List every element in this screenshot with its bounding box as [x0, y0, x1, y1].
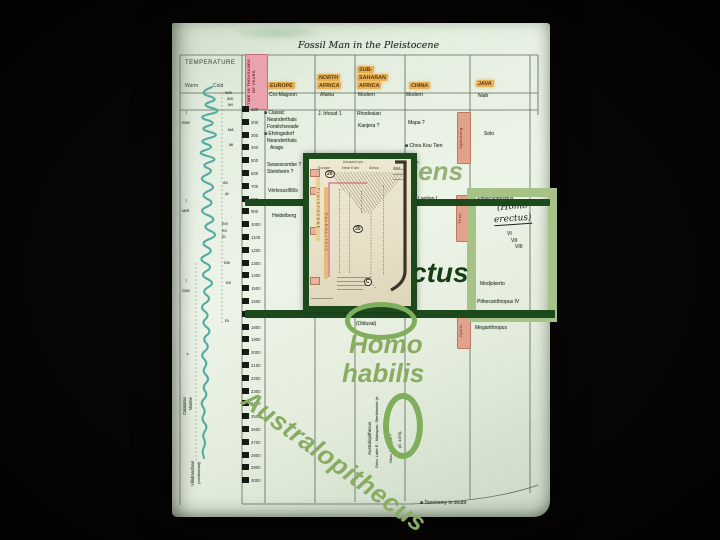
annotation-habilis: habilis	[342, 358, 424, 389]
time-tick-value: 1800	[251, 325, 261, 330]
column-header-line: AFRICA	[317, 82, 342, 89]
time-tick-dash	[242, 349, 249, 355]
time-tick-dash	[242, 247, 249, 253]
time-tick-dash	[242, 144, 249, 150]
scan-label: ↕	[185, 279, 188, 284]
scan-label: Calabrian	[183, 397, 187, 415]
time-tick-value: 300	[251, 133, 258, 138]
scan-label: Heidelberg	[272, 214, 296, 219]
time-tick-dash	[242, 362, 249, 368]
time-tick-dash	[242, 272, 249, 278]
column-header: JAVA	[476, 80, 494, 88]
cold-label: Cold	[213, 83, 223, 89]
scan-label: M/R	[182, 209, 189, 213]
time-tick-value: 400	[251, 145, 258, 150]
time-tick-dash	[242, 119, 249, 125]
time-tick-dash	[242, 132, 249, 138]
scan-label: ?	[186, 353, 189, 358]
time-tick-value: 3000	[251, 478, 261, 483]
inset-figure-box: thousand yrsEuropeNear EastAfricaAsia203…	[303, 153, 417, 312]
time-tick-dash	[242, 464, 249, 470]
scan-label: Niah	[478, 94, 488, 99]
scan-label: ■ Classic	[264, 111, 285, 116]
scan-label: Swanscombe ?	[267, 163, 301, 168]
time-tick-value: 1900	[251, 337, 261, 342]
scan-label: Modern	[358, 93, 375, 98]
scan-label: Cro-Magnon	[269, 93, 297, 98]
scan-label: Villafranchian	[191, 461, 195, 486]
time-tick-value: 500	[251, 158, 258, 163]
scan-label: Omo, Lake E., Makapan, Sterkfontein (a	[375, 397, 379, 468]
time-tick-value: 2900	[251, 465, 261, 470]
time-tick-value: 2000	[251, 350, 261, 355]
time-tick-dash	[242, 208, 249, 214]
scan-label: MA	[228, 128, 234, 132]
time-tick-value: 200	[251, 120, 258, 125]
inset-column-label: Near East	[342, 166, 359, 170]
time-tick-dash	[242, 106, 249, 112]
scan-label: Marine	[189, 397, 193, 410]
annotation-erectus-fragment: ctus	[411, 257, 469, 289]
inset-pink-box	[310, 169, 320, 177]
inset-epoch-strip: PLEISTOCENE	[316, 177, 320, 241]
scan-label: Neanderthals	[267, 118, 297, 123]
annotation-sapiens-fragment: iens	[411, 156, 463, 187]
scan-label: Steinheim ?	[267, 170, 293, 175]
column-header: EUROPE	[268, 82, 295, 90]
column-header-line: EUROPE	[268, 82, 295, 89]
time-tick-value: 1600	[251, 299, 261, 304]
scan-label: Arago	[270, 146, 283, 151]
scan-label: Solo	[484, 132, 494, 137]
inset-circled-number: 35	[353, 225, 363, 233]
time-tick-value: 1200	[251, 248, 261, 253]
time-tick-dash	[242, 452, 249, 458]
scan-label: AII	[223, 181, 228, 185]
time-tick-dash	[242, 183, 249, 189]
time-tick-value: 900	[251, 209, 258, 214]
scan-label: MI	[229, 143, 233, 147]
column-header-line: CHINA	[409, 82, 431, 89]
scan-label: Fontéchevade	[267, 125, 299, 130]
column-header-line: SUB-	[357, 66, 375, 73]
inset-circled-number: 20	[325, 170, 335, 178]
scan-label: R/W	[182, 121, 190, 125]
inset-texture	[393, 174, 405, 175]
inset-circled-number: C	[364, 278, 372, 286]
time-tick-value: 1300	[251, 261, 261, 266]
scan-label: (continental)	[197, 462, 201, 484]
column-header-line: AFRICA	[357, 82, 382, 89]
inset-column-label: Africa	[369, 166, 379, 170]
scan-label: DI	[225, 319, 229, 323]
scan-label: EII	[222, 229, 227, 233]
inset-column-label: Asia	[393, 166, 400, 170]
column-header: NORTHAFRICA	[317, 74, 341, 90]
inset-epoch-strip: PALEOLITHIC	[324, 187, 328, 279]
time-tick-value: 2800	[251, 453, 261, 458]
annotation-homo: Homo	[349, 329, 423, 360]
warm-label: Warm	[185, 83, 198, 89]
scan-label: Kanjera ?	[358, 124, 379, 129]
scan-label: ■ Taxonomy in doubt	[420, 501, 466, 506]
scan-label: EIII	[222, 222, 228, 226]
scan-label: WII	[227, 97, 233, 101]
time-tick-dash	[242, 298, 249, 304]
column-header-line: JAVA	[476, 80, 494, 87]
time-tick-dash	[242, 260, 249, 266]
time-tick-value: 2100	[251, 363, 261, 368]
time-tick-dash	[242, 426, 249, 432]
column-header-line: NORTH	[317, 74, 341, 81]
time-tick-value: 600	[251, 171, 258, 176]
marker-oval-1470	[383, 393, 423, 459]
inset-dotted-line	[361, 191, 362, 213]
time-tick-value: 2700	[251, 440, 261, 445]
scan-label: WIII	[225, 91, 232, 95]
column-header-line: SAHARAN	[357, 74, 389, 81]
time-tick-value: 1400	[251, 273, 261, 278]
time-tick-dash	[242, 285, 249, 291]
column-header: SUB-SAHARANAFRICA	[357, 66, 388, 90]
scan-label: ↕	[185, 199, 188, 204]
scan-label: AI	[225, 192, 229, 196]
scan-label: G/M	[182, 289, 190, 293]
time-tick-dash	[242, 336, 249, 342]
inset-dotted-line	[383, 185, 384, 275]
temperature-curve	[201, 87, 218, 458]
scan-label: ↕	[185, 111, 188, 116]
scan-label: DII	[226, 281, 231, 285]
time-tick-dash	[242, 221, 249, 227]
inset-axis-note: thousand yrs	[343, 160, 363, 164]
scan-label: Neanderthals	[267, 139, 297, 144]
column-header: CHINA	[409, 82, 430, 90]
inset-texture	[337, 289, 363, 290]
marker-box-java	[467, 188, 557, 322]
scan-label: Mapa ?	[408, 121, 425, 126]
time-tick-value: 1000	[251, 222, 261, 227]
scan-label: EI	[222, 235, 226, 239]
inset-dotted-line	[339, 189, 340, 273]
scan-label: ■ Ehringsdorf	[264, 132, 294, 137]
time-tick-value: 2600	[251, 427, 261, 432]
time-tick-dash	[242, 477, 249, 483]
time-tick-dash	[242, 234, 249, 240]
scan-label: J. Irhoud 1	[318, 112, 342, 117]
scan-label: WI	[228, 103, 233, 107]
time-tick-dash	[242, 375, 249, 381]
time-tick-value: 1100	[251, 235, 260, 240]
inset-texture	[311, 298, 333, 299]
time-axis-label: TIME IN THOUSANDS OF YEARS	[245, 54, 268, 110]
inset-pink-box	[310, 277, 320, 285]
scan-label: Afalou	[320, 93, 334, 98]
scan-label: Australopithecus	[368, 422, 373, 455]
scan-label: ■ Chou Kou Tien	[405, 144, 443, 149]
time-tick-value: 100	[251, 107, 258, 112]
scan-label: DIII	[224, 261, 230, 265]
temperature-header: TEMPERATURE	[185, 60, 235, 66]
time-tick-dash	[242, 324, 249, 330]
scan-label: Vértesszőllős	[268, 189, 298, 194]
scan-label: Meganthropus	[475, 326, 507, 331]
time-tick-value: 1500	[251, 286, 261, 291]
scan-label: Modern	[406, 93, 423, 98]
time-tick-value: 700	[251, 184, 258, 189]
inset-texture	[337, 281, 367, 282]
inset-texture	[393, 179, 405, 180]
inset-dotted-line	[349, 193, 350, 273]
time-tick-dash	[242, 170, 249, 176]
time-tick-dash	[242, 439, 249, 445]
time-tick-dash	[242, 157, 249, 163]
time-tick-value: 2200	[251, 376, 261, 381]
slide-photo: Fossil Man in the Pleistocene TEMPERATUR…	[0, 0, 720, 540]
scan-label: Rhodesian	[357, 112, 381, 117]
